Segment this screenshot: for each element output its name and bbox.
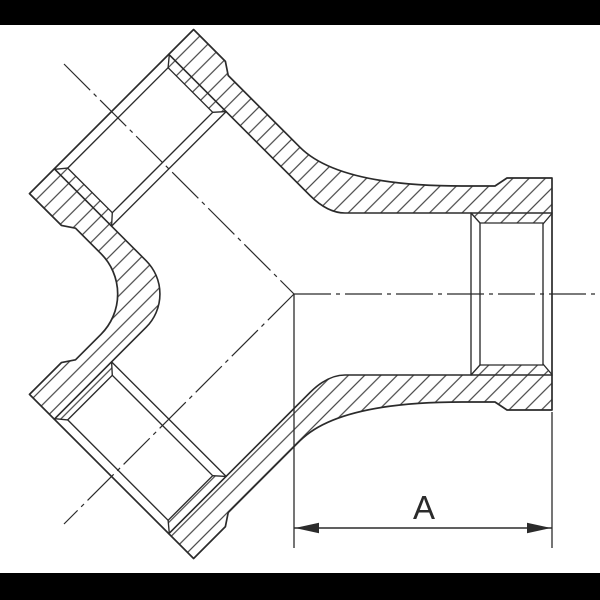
y-fitting-section-drawing: A <box>0 0 600 600</box>
hatch-right-socket-thread-top <box>471 213 552 223</box>
letterbox-bottom <box>0 573 600 600</box>
dimension-label: A <box>413 489 435 526</box>
letterbox-top <box>0 0 600 25</box>
drawing-paper-background <box>0 25 600 573</box>
hatch-right-socket-thread-bottom <box>471 365 552 375</box>
screenshot-canvas: A <box>0 0 600 600</box>
